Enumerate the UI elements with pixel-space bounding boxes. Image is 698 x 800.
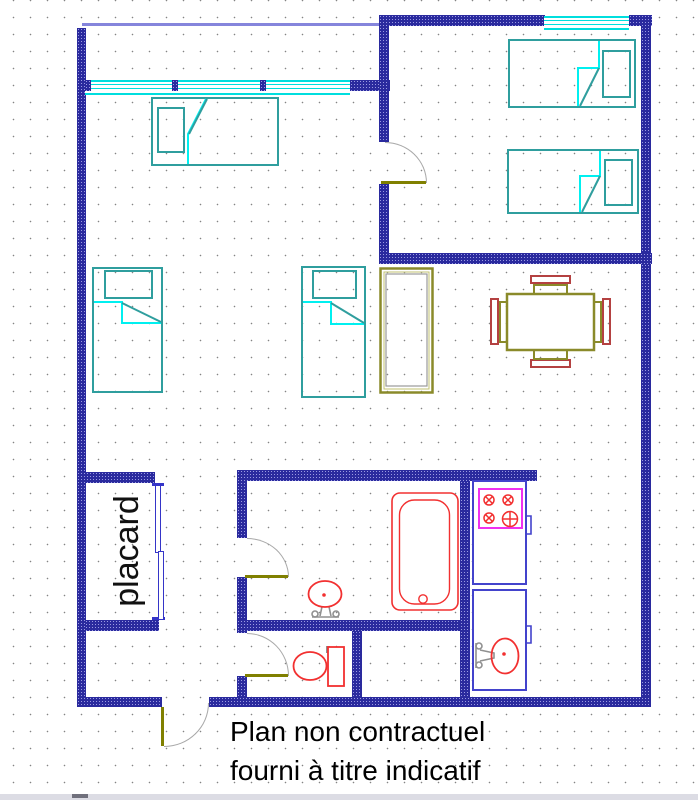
bottom-edge-tick	[72, 794, 88, 798]
bed-bedroom-bottom	[508, 150, 638, 213]
bed-bedroom-top	[509, 40, 635, 107]
wall-closet-bottom	[85, 620, 159, 631]
wall-wc-right	[352, 631, 362, 701]
window-bedroom	[544, 16, 629, 30]
closet-sliding-door-panel	[155, 485, 161, 553]
door-swing-entrance	[164, 703, 209, 747]
closet-sliding-door-panel	[158, 551, 164, 620]
toilet	[294, 646, 345, 686]
floor-plan: placard Plan non contractuel fourni à ti…	[0, 0, 698, 800]
bottom-edge-strip	[0, 794, 698, 800]
sink-unit	[473, 590, 531, 690]
washbasin	[309, 581, 342, 617]
furniture-layer	[0, 0, 698, 800]
wall-kitchen-divider	[460, 481, 470, 701]
wall-bottom-main	[209, 697, 651, 707]
wall-right	[641, 15, 651, 707]
closet-label: placard	[109, 491, 145, 611]
wardrobe	[381, 269, 433, 393]
window-living-room	[85, 80, 350, 95]
door-swing-wc	[247, 633, 289, 676]
window-glass-line	[85, 84, 350, 89]
window-mullion	[85, 80, 91, 91]
dining-table	[507, 294, 594, 350]
bed-living-middle	[302, 267, 365, 397]
door-swing-bedroom	[385, 142, 427, 183]
wall-bedroom-left-upper	[379, 15, 389, 142]
wall-bedroom-bottom	[379, 253, 652, 264]
chair-right	[593, 299, 610, 344]
wall-bedroom-left-lower	[379, 184, 389, 256]
wall-bottom-left	[77, 697, 162, 707]
wall-bedroom-top-left	[379, 15, 545, 26]
wall-left	[77, 28, 86, 707]
window-glass-line	[544, 20, 629, 25]
window-mullion	[260, 80, 266, 91]
faucet-icon	[312, 602, 339, 617]
wall-closet-top	[86, 472, 155, 483]
chair-top	[531, 276, 570, 295]
burner-icon	[484, 495, 518, 527]
bed-living-left	[93, 268, 162, 392]
window-mullion	[172, 80, 178, 91]
door-swing-bathroom	[247, 538, 289, 577]
wall-bathroom-top	[237, 470, 537, 481]
disclaimer-line-2: fourni à titre indicatif	[230, 751, 485, 790]
balcony-line	[82, 23, 398, 26]
cooktop-unit	[473, 481, 531, 584]
chair-left	[491, 299, 508, 344]
bathtub	[392, 493, 458, 610]
wall-bathroom-bottom	[237, 620, 465, 631]
chair-bottom	[531, 349, 570, 367]
disclaimer-text: Plan non contractuel fourni à titre indi…	[230, 712, 485, 790]
faucet-icon	[476, 643, 494, 668]
disclaimer-line-1: Plan non contractuel	[230, 712, 485, 751]
wall-bathroom-left-upper	[237, 470, 247, 538]
bed-living-top	[152, 98, 278, 165]
